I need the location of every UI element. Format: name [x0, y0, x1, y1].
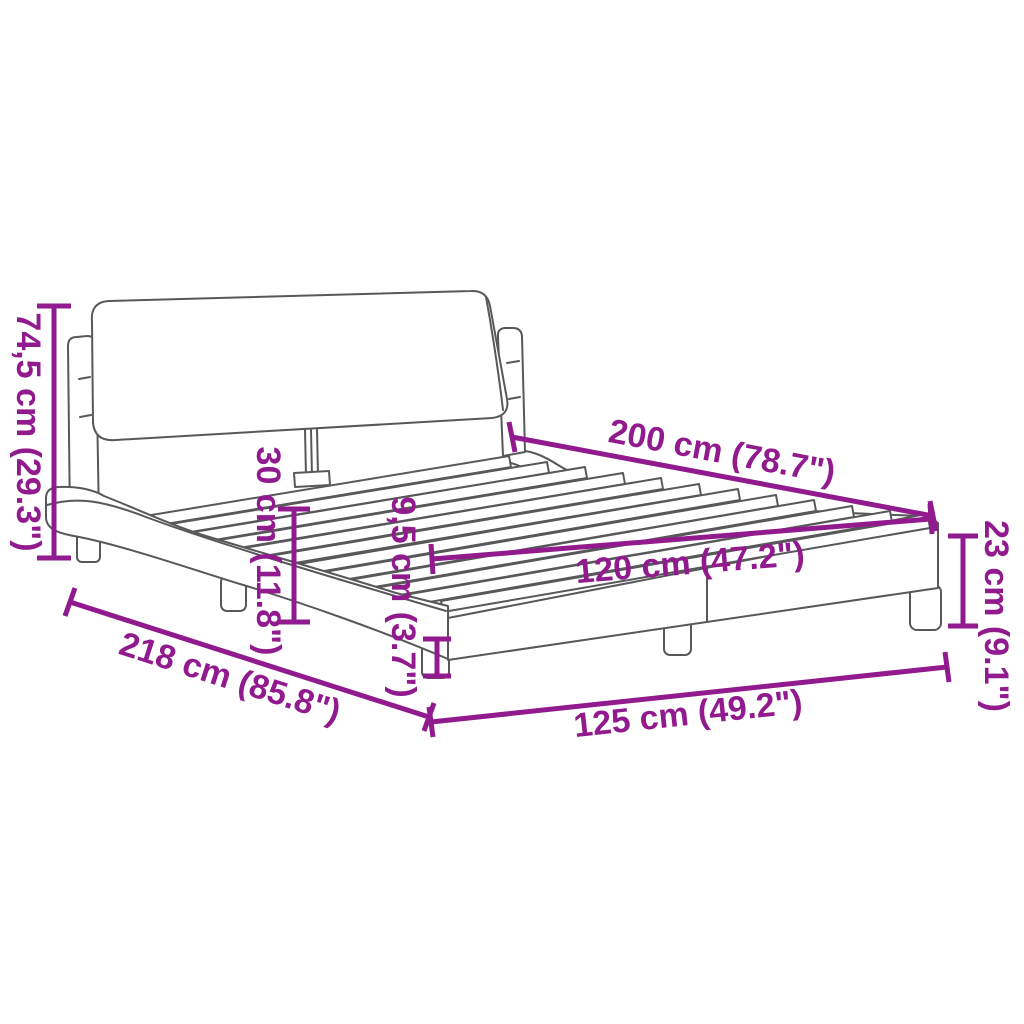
bed-dimension-diagram: 74,5 cm (29.3") 30 cm (11.8") 9,5 cm (3.… [0, 0, 1024, 1024]
dim-cap [945, 652, 949, 682]
diagram-canvas: 74,5 cm (29.3") 30 cm (11.8") 9,5 cm (3.… [0, 0, 1024, 1024]
label-frame-height: 23 cm (9.1") [977, 520, 1015, 712]
label-length-inner: 200 cm (78.7") [606, 412, 839, 492]
dim-cap [930, 504, 932, 534]
dim-frame-height [948, 536, 978, 626]
bracket-flange [294, 471, 330, 487]
bed-headboard-cushion [92, 291, 508, 440]
dim-cap [431, 544, 433, 574]
bracket-stem [305, 429, 318, 477]
label-headboard-height: 74,5 cm (29.3") [9, 312, 47, 551]
label-headboard-clearance: 30 cm (11.8") [249, 447, 287, 656]
label-rail-height: 9,5 cm (3.7") [384, 496, 422, 697]
